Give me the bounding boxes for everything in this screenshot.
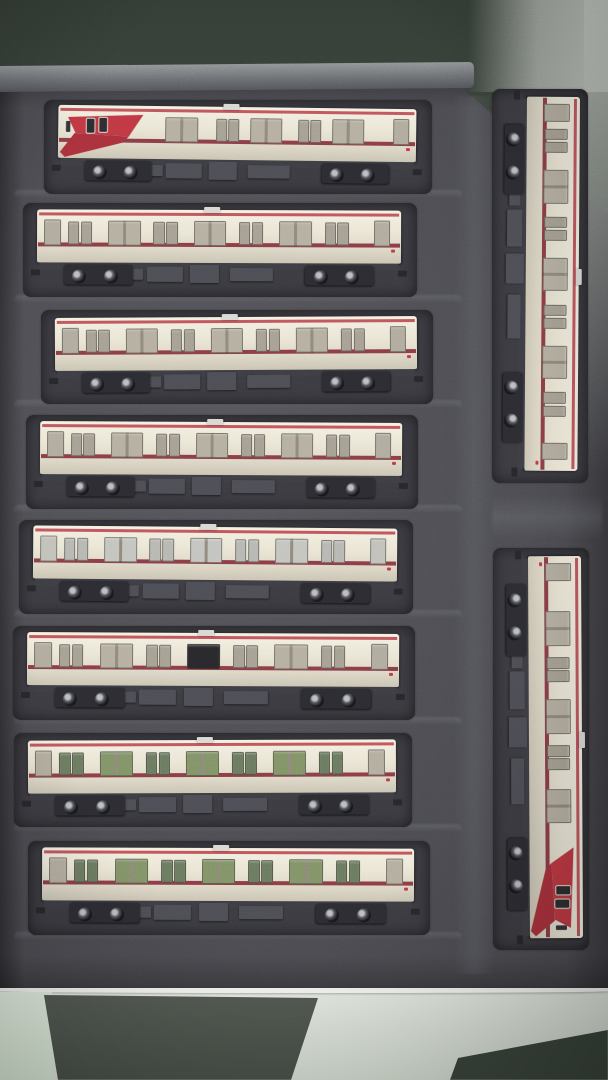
wheel <box>78 907 92 921</box>
underfloor-equipment <box>507 295 520 339</box>
door-window <box>166 222 177 245</box>
passenger-window <box>250 118 283 143</box>
underfloor-equipment <box>183 688 213 706</box>
passenger-window <box>194 221 227 246</box>
bogie <box>322 371 390 391</box>
car-chassis <box>42 474 400 503</box>
passenger-window <box>104 537 137 562</box>
door-window <box>235 539 246 562</box>
coupler <box>394 589 403 595</box>
underfloor-equipment <box>192 477 221 495</box>
car-chassis <box>57 369 415 398</box>
roof-vent-tab <box>221 314 237 320</box>
wheel <box>72 269 86 283</box>
door-window <box>261 860 273 883</box>
car-chassis <box>39 262 399 290</box>
table-pale-corner-left <box>0 992 52 1080</box>
tail-light <box>539 562 542 566</box>
end-window <box>545 563 571 581</box>
door-window <box>547 745 570 757</box>
door-window <box>146 752 157 775</box>
door-window <box>81 222 92 245</box>
car-body <box>42 847 414 901</box>
end-window <box>40 535 57 561</box>
door-window <box>239 222 250 245</box>
underfloor-equipment <box>226 585 269 598</box>
underfloor-equipment <box>223 798 267 811</box>
bogie <box>56 795 125 815</box>
bogie <box>84 160 151 181</box>
end-window <box>541 443 567 460</box>
door-window <box>246 645 258 668</box>
coupler <box>22 801 31 807</box>
foam-divider-vertical <box>452 96 496 974</box>
underfloor-equipment <box>147 267 183 282</box>
coupler <box>396 694 405 700</box>
car-chassis <box>30 792 394 820</box>
door-window <box>162 539 173 562</box>
bogie <box>305 265 373 285</box>
door-window <box>232 752 243 775</box>
train-car-5 <box>33 525 398 608</box>
door-window <box>256 329 267 352</box>
underfloor-equipment <box>198 903 228 921</box>
underfloor-equipment <box>154 905 191 920</box>
coupler <box>27 585 36 591</box>
coupler <box>514 91 520 100</box>
passenger-window <box>196 433 229 458</box>
door-window <box>77 538 88 561</box>
photo-root <box>0 0 608 1080</box>
door-window <box>98 330 109 353</box>
coupler <box>21 692 30 698</box>
underfloor-equipment <box>509 717 527 747</box>
underfloor-equipment <box>164 374 200 389</box>
bogie <box>55 687 125 707</box>
underfloor-equipment <box>230 268 273 281</box>
passenger-window <box>543 258 568 292</box>
roof-vent-tab <box>198 630 214 636</box>
wheel <box>361 376 375 390</box>
door-window <box>326 435 337 458</box>
end-window <box>370 538 387 564</box>
door-window <box>544 216 567 228</box>
roof-vent-tab <box>579 732 585 748</box>
end-window <box>35 751 52 777</box>
passenger-window <box>211 328 244 353</box>
passenger-window <box>111 432 144 457</box>
wheel <box>357 908 371 922</box>
door-window <box>159 645 171 668</box>
door-window <box>153 222 164 245</box>
door-window <box>334 646 346 669</box>
bogie <box>60 581 129 602</box>
door-window <box>72 644 84 667</box>
car-body <box>528 556 583 938</box>
bogie <box>301 583 370 604</box>
door-window <box>353 328 364 351</box>
bogie <box>506 585 526 657</box>
wheel <box>345 270 359 284</box>
coupler <box>393 799 402 805</box>
passenger-window <box>108 221 141 246</box>
wheel <box>92 165 106 179</box>
car-chassis <box>501 558 530 936</box>
door-window <box>341 328 352 351</box>
door-window <box>254 434 265 457</box>
underfloor-equipment <box>239 906 283 919</box>
passenger-window <box>289 859 323 884</box>
cab-nose <box>58 105 155 159</box>
wheel <box>361 169 375 183</box>
bogie <box>301 688 371 708</box>
end-window <box>62 328 79 354</box>
bogie <box>322 163 389 184</box>
passenger-window <box>296 328 329 353</box>
car-chassis <box>60 158 414 189</box>
end-window <box>390 326 407 352</box>
coupler <box>413 169 422 175</box>
door-window <box>543 405 566 417</box>
coupler <box>515 550 521 559</box>
car-body <box>524 97 580 471</box>
train-car-9 <box>497 96 580 471</box>
door-window <box>544 230 567 242</box>
bogie <box>503 372 523 442</box>
passenger-window <box>187 644 221 669</box>
wheel <box>505 165 519 179</box>
car-body <box>55 316 417 371</box>
door-window <box>339 435 350 458</box>
underfloor-equipment <box>166 163 202 178</box>
end-window <box>368 749 385 775</box>
coupler <box>52 165 61 171</box>
train-car-3 <box>55 316 417 398</box>
door-window <box>319 752 330 775</box>
wheel <box>123 166 137 180</box>
wheel <box>104 270 118 284</box>
car-chassis <box>35 578 395 608</box>
train-car-1 <box>58 105 417 189</box>
door-window <box>174 860 186 883</box>
coupler <box>31 269 40 275</box>
bogie <box>70 902 140 922</box>
door-window <box>321 646 333 669</box>
end-window <box>374 221 391 247</box>
bogie <box>504 124 524 194</box>
tail-light <box>406 148 410 151</box>
underfloor-equipment <box>510 672 525 710</box>
passenger-window <box>165 117 198 142</box>
roof-vent-tab <box>197 737 213 743</box>
coupler <box>34 481 43 487</box>
door-window <box>159 752 170 775</box>
car-body <box>27 632 399 687</box>
wheel <box>315 482 329 496</box>
door-window <box>336 860 348 883</box>
passenger-window <box>546 789 571 824</box>
passenger-window <box>125 328 158 353</box>
tail-light <box>392 462 396 465</box>
door-window <box>59 644 71 667</box>
wheel <box>309 588 323 602</box>
coupler <box>49 378 58 384</box>
roof-vent-tab <box>205 207 221 213</box>
door-window <box>547 758 570 770</box>
passenger-window <box>202 859 236 884</box>
end-window <box>49 857 66 883</box>
passenger-window <box>186 751 219 776</box>
wheel <box>310 694 324 708</box>
door-window <box>298 120 309 143</box>
wheel <box>75 481 89 495</box>
door-window <box>86 330 97 353</box>
door-window <box>248 539 259 562</box>
coupler <box>517 935 523 944</box>
underfloor-equipment <box>139 797 175 812</box>
underfloor-equipment <box>247 375 290 388</box>
foam-case-top-edge <box>0 62 474 92</box>
car-body <box>37 209 401 263</box>
car-body <box>58 105 417 162</box>
underfloor-equipment <box>247 165 290 179</box>
underfloor-equipment <box>207 372 236 390</box>
wheel <box>507 626 521 640</box>
tail-light <box>389 673 393 676</box>
door-window <box>252 222 263 245</box>
wheel <box>64 800 78 814</box>
door-window <box>87 860 99 883</box>
roof-vent-tab <box>207 419 223 425</box>
wheel <box>308 800 322 814</box>
end-window <box>371 644 388 670</box>
door-window <box>74 859 86 882</box>
underfloor-equipment <box>506 254 524 284</box>
wheel <box>96 800 110 814</box>
passenger-window <box>275 539 308 564</box>
door-window <box>545 142 568 154</box>
door-window <box>325 222 336 245</box>
door-window <box>228 119 239 142</box>
foam-divider-right-column <box>492 494 602 540</box>
train-car-2 <box>37 209 401 290</box>
passenger-window <box>274 644 308 669</box>
door-window <box>59 752 70 775</box>
tail-light <box>386 778 390 781</box>
door-window <box>216 119 227 142</box>
door-window <box>337 222 348 245</box>
bogie <box>67 476 135 496</box>
train-car-7 <box>28 739 396 820</box>
door-window <box>547 657 570 669</box>
wheel <box>110 908 124 922</box>
bogie <box>507 838 527 910</box>
door-window <box>183 329 194 352</box>
coupler <box>414 376 423 382</box>
bogie <box>82 372 150 392</box>
underfloor-equipment <box>208 162 237 180</box>
door-window <box>156 434 167 457</box>
passenger-window <box>281 433 314 458</box>
door-window <box>64 538 75 561</box>
underfloor-equipment <box>139 690 176 705</box>
roof-vent-tab <box>201 524 217 530</box>
bogie <box>299 794 368 814</box>
end-window <box>544 104 570 121</box>
door-window <box>150 538 161 561</box>
coupler <box>511 468 517 477</box>
end-window <box>44 219 61 245</box>
passenger-window <box>115 859 149 884</box>
underfloor-equipment <box>149 479 185 494</box>
underfloor-equipment <box>143 583 179 598</box>
wheel <box>346 483 360 497</box>
door-window <box>245 752 256 775</box>
wheel <box>122 378 136 392</box>
coupler <box>411 909 420 915</box>
wheel <box>90 378 104 392</box>
table-surface-bottom <box>0 988 608 1080</box>
bogie <box>307 477 375 497</box>
underfloor-equipment <box>511 759 524 804</box>
cab-nose <box>529 835 583 938</box>
wheel <box>95 692 109 706</box>
train-car-4 <box>40 421 402 503</box>
train-car-10 <box>501 556 583 938</box>
door-window <box>349 860 361 883</box>
passenger-window <box>332 119 365 144</box>
wheel <box>504 381 518 395</box>
door-window <box>171 329 182 352</box>
passenger-window <box>543 170 568 204</box>
car-chassis <box>44 900 412 928</box>
roof-vent-tab <box>223 104 239 110</box>
wheel <box>325 908 339 922</box>
end-window <box>34 642 51 668</box>
door-window <box>248 860 260 883</box>
passenger-window <box>546 699 571 734</box>
end-window <box>375 433 392 459</box>
wheel <box>509 847 523 861</box>
door-window <box>83 433 94 456</box>
wheel <box>341 588 355 602</box>
door-window <box>545 129 568 141</box>
case-bottom-white-edge <box>0 988 608 993</box>
tail-light <box>387 568 391 571</box>
coupler <box>398 271 407 277</box>
passenger-window <box>273 751 306 776</box>
underfloor-equipment <box>232 480 275 493</box>
door-window <box>333 540 344 563</box>
tail-light <box>407 355 411 358</box>
door-window <box>543 304 566 316</box>
underfloor-equipment <box>186 582 215 600</box>
bogie <box>64 264 132 284</box>
underfloor-equipment <box>224 691 268 704</box>
wheel <box>106 481 120 495</box>
wheel <box>330 376 344 390</box>
train-car-8 <box>42 847 414 928</box>
passenger-window <box>545 611 570 646</box>
car-body <box>33 525 397 581</box>
underfloor-equipment <box>183 795 212 813</box>
passenger-window <box>542 345 567 379</box>
wheel <box>330 168 344 182</box>
wheel <box>68 586 82 600</box>
door-window <box>72 752 83 775</box>
tail-light <box>404 888 408 891</box>
bogie <box>316 903 386 923</box>
door-window <box>241 434 252 457</box>
end-window <box>47 431 64 457</box>
underfloor-equipment <box>507 209 522 246</box>
wheel <box>100 586 114 600</box>
door-window <box>68 221 79 244</box>
train-car-6 <box>27 632 399 714</box>
roof-vent-tab <box>576 269 582 285</box>
passenger-window <box>100 751 133 776</box>
passenger-window <box>279 221 312 246</box>
wheel <box>506 133 520 147</box>
car-body <box>40 421 402 476</box>
wheel <box>63 692 77 706</box>
wheel <box>507 593 521 607</box>
door-window <box>543 392 566 404</box>
passenger-window <box>100 643 134 668</box>
car-chassis <box>29 685 397 714</box>
door-window <box>310 120 321 143</box>
end-window <box>393 119 410 145</box>
tail-light <box>535 461 538 465</box>
passenger-window <box>190 538 223 563</box>
wheel <box>342 694 356 708</box>
roof-vent-tab <box>213 845 229 851</box>
underfloor-equipment <box>190 265 219 283</box>
door-window <box>169 434 180 457</box>
door-window <box>71 433 82 456</box>
door-window <box>233 645 245 668</box>
door-window <box>268 329 279 352</box>
coupler <box>36 907 45 913</box>
door-window <box>161 860 173 883</box>
coupler <box>399 483 408 489</box>
wheel <box>509 880 523 894</box>
tail-light <box>391 250 395 253</box>
door-window <box>547 670 570 682</box>
wheel <box>504 413 518 427</box>
wheel <box>340 800 354 814</box>
door-window <box>543 317 566 329</box>
door-window <box>331 752 342 775</box>
car-body <box>28 739 396 793</box>
wheel <box>313 270 327 284</box>
door-window <box>146 645 158 668</box>
end-window <box>386 859 403 885</box>
door-window <box>321 540 332 563</box>
car-chassis <box>497 98 527 468</box>
